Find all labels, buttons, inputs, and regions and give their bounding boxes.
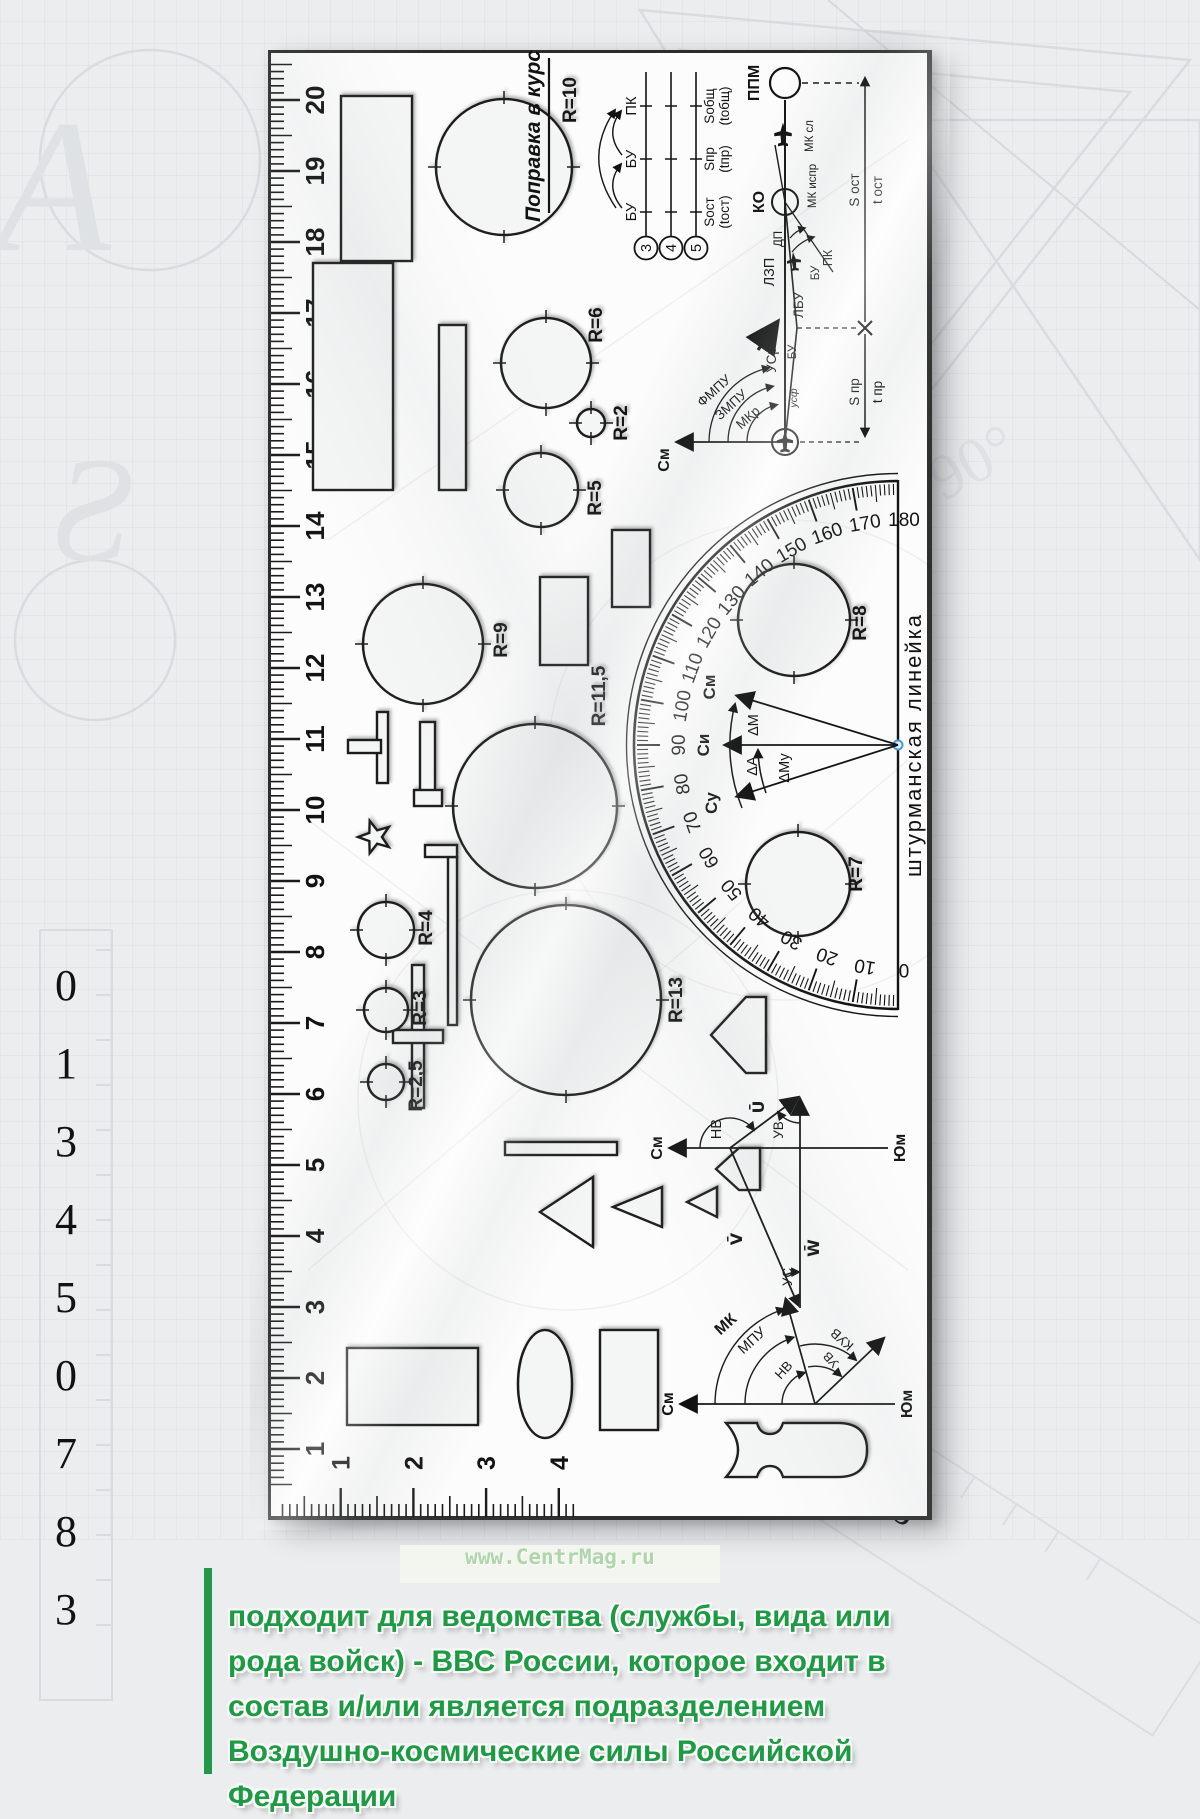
svg-text:7: 7 [55,1429,77,1478]
watermark-ruler-numbers: 013 450 783 [55,961,77,1634]
svg-text:4: 4 [55,1195,77,1244]
product-caption: подходит для ведомства (службы, вида или… [228,1594,1158,1819]
caption-line: Федерации [228,1774,1158,1819]
store-watermark: www.CentrMag.ru [400,1545,720,1583]
caption-line: состав и/или является подразделением [228,1684,1158,1729]
navigator-ruler: 1234567891011121314151617181920 1234 [268,50,932,1520]
svg-text:0: 0 [55,961,77,1010]
caption-line: подходит для ведомства (службы, вида или [228,1594,1158,1639]
caption-line: рода войск) - ВВС России, которое входит… [228,1639,1158,1684]
svg-text:8: 8 [55,1507,77,1556]
svg-text:1: 1 [55,1039,77,1088]
watermark-letter-s: Ƨ [55,427,131,593]
svg-text:0: 0 [55,1351,77,1400]
page: { "watermark_url": "www.CentrMag.ru", "c… [0,0,1200,1800]
watermark-letter-a: А [0,82,112,292]
svg-text:3: 3 [55,1585,77,1634]
svg-text:3: 3 [55,1117,77,1166]
ruler-graphics: 1234567891011121314151617181920 1234 [268,50,932,1520]
caption-line: Воздушно-космические силы Российской [228,1729,1158,1774]
caption-accent-bar [204,1568,212,1774]
watermark-90-label: 90° [916,409,1028,514]
ruler-design-surface: 1234567891011121314151617181920 1234 [268,50,932,1520]
svg-text:5: 5 [55,1273,77,1322]
plastic-sheen [268,50,932,1520]
